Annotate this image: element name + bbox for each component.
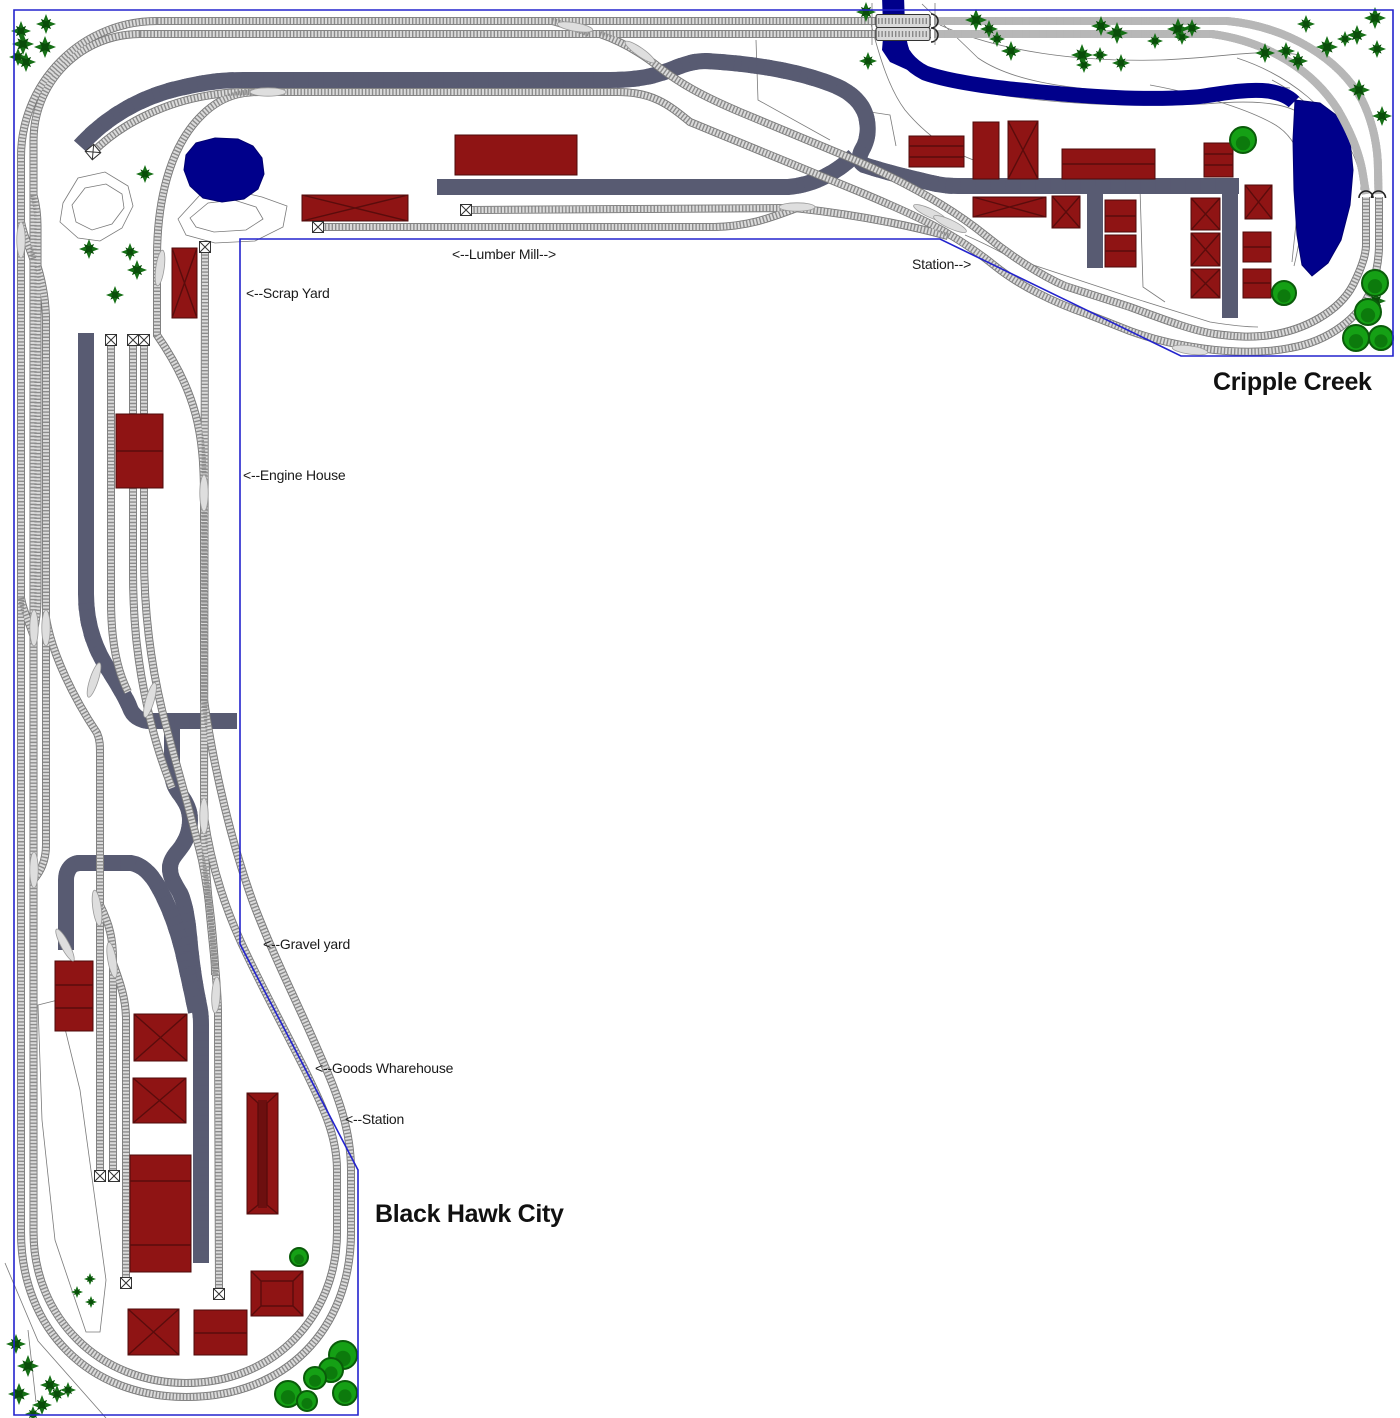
svg-text:Black Hawk City: Black Hawk City <box>375 1200 564 1228</box>
svg-text:<--Lumber Mill-->: <--Lumber Mill--> <box>452 246 556 262</box>
svg-text:<--Gravel yard: <--Gravel yard <box>263 936 350 952</box>
svg-text:<--Scrap Yard: <--Scrap Yard <box>246 285 330 301</box>
svg-text:<--Station: <--Station <box>345 1111 404 1127</box>
svg-text:Cripple Creek: Cripple Creek <box>1213 368 1372 396</box>
svg-text:Station-->: Station--> <box>912 256 971 272</box>
svg-text:<--Goods Wharehouse: <--Goods Wharehouse <box>315 1060 454 1076</box>
svg-text:<--Engine House: <--Engine House <box>243 467 346 483</box>
